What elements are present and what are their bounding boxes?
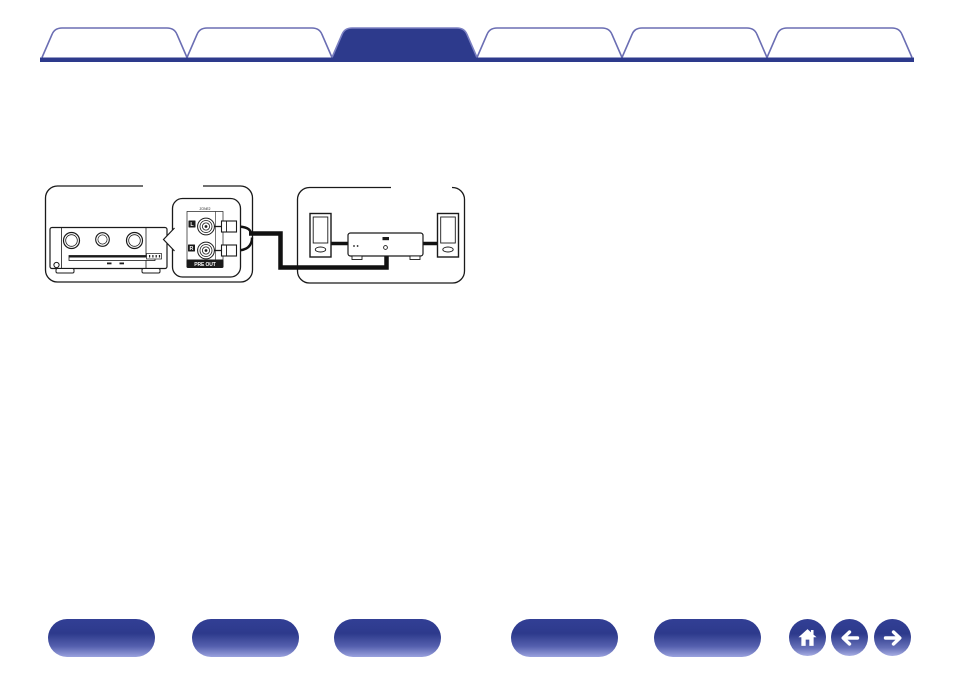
amp-box-label-gap [391, 185, 452, 191]
foot-left [56, 269, 74, 274]
speaker-right [438, 214, 459, 258]
footer-section-button-1[interactable] [48, 619, 155, 657]
unit-box-label-gap [143, 184, 203, 190]
zone2-connection-diagram: ZONE2 L R PRE OUT [40, 180, 470, 292]
foot-right [142, 269, 160, 274]
home-button[interactable] [789, 619, 826, 656]
forward-button[interactable] [874, 619, 911, 656]
tab-section-2[interactable] [187, 28, 332, 58]
back-button[interactable] [831, 619, 868, 656]
footer-section-button-4[interactable] [511, 619, 618, 657]
jack-panel [187, 212, 223, 261]
footer-section-button-5[interactable] [654, 619, 761, 657]
arrow-right-icon [881, 626, 905, 650]
jack-right [198, 242, 215, 259]
tab-section-1[interactable] [42, 28, 187, 58]
speaker-left [310, 214, 331, 258]
jack-left [198, 218, 215, 235]
manual-page: { "theme": { "accent": "#2d3a8c", "tab_o… [0, 0, 954, 673]
footer-section-button-2[interactable] [192, 619, 299, 657]
tab-section-6[interactable] [767, 28, 912, 58]
arrow-left-icon [838, 626, 862, 650]
tab-bar-baseline [40, 58, 914, 63]
channel-right-label: R [190, 246, 194, 252]
zone-label: ZONE2 [200, 207, 211, 211]
tab-section-4[interactable] [477, 28, 622, 58]
power-amplifier [348, 233, 423, 260]
preout-callout: ZONE2 L R PRE OUT [164, 199, 241, 278]
receiver-unit [50, 228, 167, 274]
home-icon [796, 626, 819, 649]
tab-section-5[interactable] [622, 28, 767, 58]
tab-section-3[interactable] [332, 28, 477, 58]
footer-section-button-3[interactable] [334, 619, 441, 657]
section-tab-bar [0, 0, 954, 70]
preout-label: PRE OUT [194, 262, 216, 268]
